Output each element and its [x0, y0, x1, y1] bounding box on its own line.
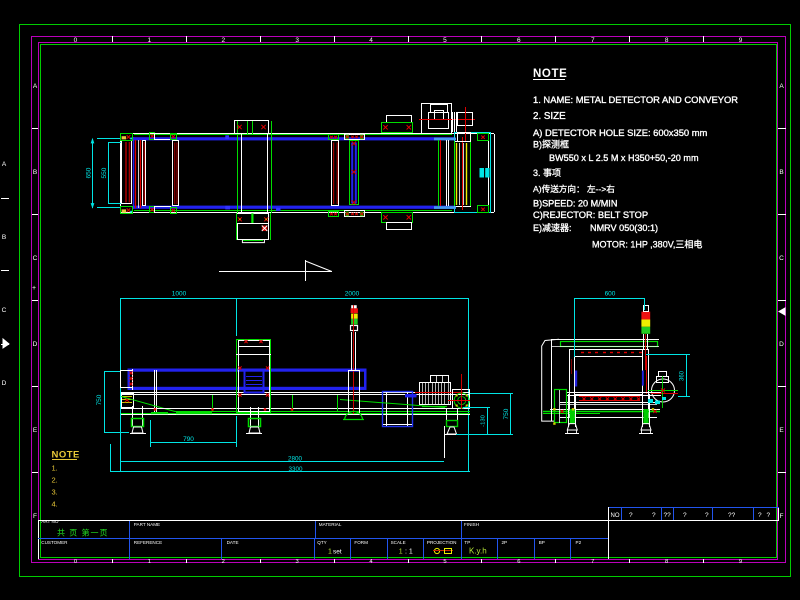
svg-text:1: 1: [399, 549, 403, 556]
svg-text:2. SIZE: 2. SIZE: [533, 111, 566, 122]
svg-text:??: ??: [664, 512, 672, 519]
svg-text:3. 事项: 3. 事项: [533, 167, 561, 178]
svg-text:2: 2: [221, 37, 225, 44]
svg-text:MOTOR: 1HP ,380V,三相电: MOTOR: 1HP ,380V,三相电: [592, 239, 702, 250]
svg-text:6: 6: [517, 559, 520, 565]
svg-text:C: C: [2, 307, 7, 314]
svg-text:F: F: [33, 513, 37, 520]
svg-text:BP: BP: [539, 540, 545, 545]
svg-text:PROJECTION: PROJECTION: [427, 540, 457, 545]
svg-text:1: 1: [148, 559, 151, 565]
svg-text:2000: 2000: [345, 291, 360, 298]
svg-text:??: ??: [728, 512, 736, 519]
svg-text:MATERIAL: MATERIAL: [319, 522, 342, 527]
svg-text:共 页 第一页: 共 页 第一页: [57, 528, 108, 538]
svg-text:DATE: DATE: [227, 540, 239, 545]
svg-text:750: 750: [503, 408, 510, 419]
svg-text:B: B: [2, 234, 6, 241]
svg-text:K.y.h: K.y.h: [469, 547, 487, 556]
svg-text:550: 550: [101, 167, 108, 178]
svg-text:D: D: [33, 341, 38, 348]
svg-text:FINISH: FINISH: [464, 522, 479, 527]
svg-text:790: 790: [183, 436, 194, 443]
svg-text:3300: 3300: [288, 466, 303, 473]
svg-text:BW550 x L 2.5 M x H350+50,-20: BW550 x L 2.5 M x H350+50,-20 mm: [549, 153, 699, 163]
svg-text:9: 9: [739, 559, 742, 565]
svg-text:3: 3: [296, 559, 299, 565]
svg-text:C: C: [779, 255, 784, 262]
svg-text:E)减速器:: E)减速器:: [533, 222, 572, 233]
svg-text:FORM: FORM: [354, 540, 368, 545]
svg-text:A: A: [779, 83, 784, 90]
svg-text:SCALE: SCALE: [391, 540, 406, 545]
svg-text:1. NAME: METAL DETECTOR AND CO: 1. NAME: METAL DETECTOR AND CONVEYOR: [533, 94, 738, 105]
svg-text:QTY: QTY: [317, 540, 326, 545]
svg-text:?: ?: [767, 512, 771, 519]
svg-text:D: D: [2, 380, 7, 387]
svg-text:4: 4: [369, 37, 373, 44]
svg-text:8: 8: [665, 37, 669, 44]
svg-text:NO: NO: [611, 513, 620, 519]
svg-text:1000: 1000: [172, 291, 187, 298]
svg-text:2.: 2.: [52, 476, 58, 485]
svg-text:-130: -130: [480, 415, 486, 427]
svg-text:650: 650: [86, 167, 93, 178]
svg-text:: 1: : 1: [405, 549, 413, 556]
svg-text:0: 0: [74, 559, 77, 565]
svg-text:+: +: [32, 285, 36, 292]
svg-text:B)探测框: B)探测框: [533, 139, 569, 150]
svg-text:8: 8: [665, 559, 668, 565]
svg-text:3.: 3.: [52, 488, 58, 497]
svg-text:360: 360: [680, 370, 686, 381]
svg-text:9: 9: [739, 37, 743, 44]
svg-text:B: B: [779, 169, 783, 176]
svg-text:A: A: [2, 161, 7, 168]
svg-text:600: 600: [605, 291, 616, 298]
svg-text:E: E: [33, 427, 38, 434]
svg-text:B: B: [33, 169, 37, 176]
svg-text:7: 7: [591, 559, 594, 565]
svg-text:B)SPEED: 20 M/MIN: B)SPEED: 20 M/MIN: [533, 199, 617, 209]
svg-text:?: ?: [683, 512, 687, 519]
svg-text:REFERENCE: REFERENCE: [134, 540, 162, 545]
svg-text:PART NAME: PART NAME: [134, 522, 160, 527]
svg-text:ART NO: ART NO: [41, 519, 59, 524]
svg-text:NOTE: NOTE: [533, 68, 567, 80]
svg-text:?: ?: [629, 512, 633, 519]
svg-text:E: E: [779, 427, 784, 434]
svg-text:2: 2: [222, 559, 225, 565]
svg-text:6: 6: [517, 37, 521, 44]
svg-text:A) DETECTOR HOLE SIZE: 600x350: A) DETECTOR HOLE SIZE: 600x350 mm: [533, 127, 708, 138]
svg-text:F: F: [780, 513, 784, 520]
svg-text:set: set: [333, 549, 342, 556]
svg-text:1: 1: [148, 37, 152, 44]
svg-text:C)REJECTOR: BELT STOP: C)REJECTOR: BELT STOP: [533, 210, 648, 220]
svg-text:NOTE: NOTE: [52, 450, 80, 461]
svg-text:5: 5: [443, 37, 447, 44]
svg-text:1.: 1.: [52, 464, 58, 473]
svg-text:?: ?: [652, 512, 656, 519]
svg-text:CUSTOMER: CUSTOMER: [41, 540, 68, 545]
svg-text:TP: TP: [464, 540, 470, 545]
svg-text:5: 5: [443, 559, 446, 565]
svg-text:0: 0: [74, 37, 78, 44]
svg-text:A: A: [33, 83, 38, 90]
svg-text:NMRV 050(30:1): NMRV 050(30:1): [590, 223, 658, 233]
svg-text:7: 7: [591, 37, 595, 44]
svg-text:A)传送方向： 左-->右: A)传送方向： 左-->右: [533, 183, 615, 194]
svg-text:P2: P2: [576, 540, 582, 545]
svg-text:2P: 2P: [502, 540, 508, 545]
svg-text:3: 3: [295, 37, 299, 44]
svg-text:D: D: [779, 341, 784, 348]
svg-text:1: 1: [328, 549, 332, 556]
svg-text:4.: 4.: [52, 500, 58, 509]
svg-text:?: ?: [705, 512, 709, 519]
svg-text:750: 750: [96, 394, 103, 405]
svg-text:C: C: [33, 255, 38, 262]
svg-text:?: ?: [758, 512, 762, 519]
svg-text:2800: 2800: [288, 456, 303, 463]
